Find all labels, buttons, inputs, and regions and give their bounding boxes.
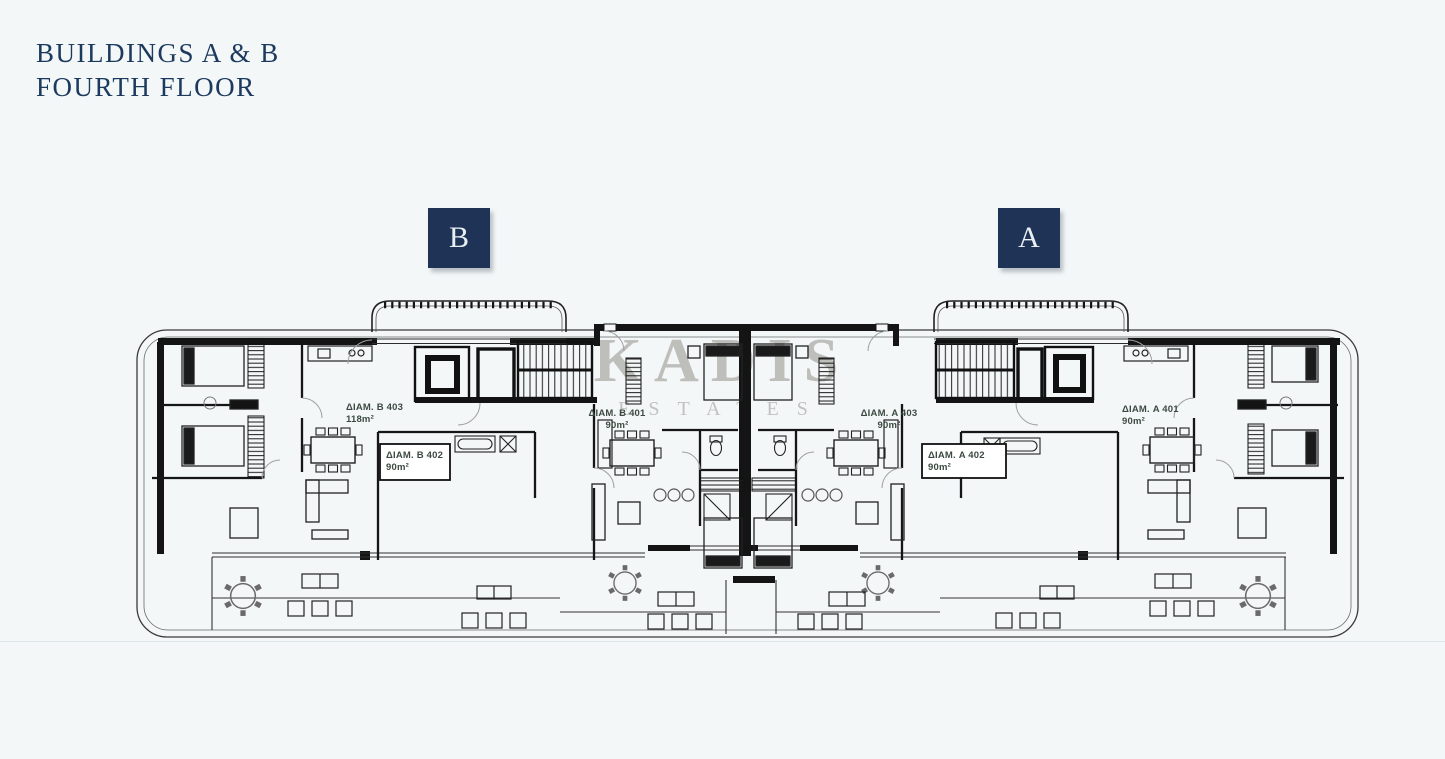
apartment-a401-area: 90m² [1122, 416, 1179, 428]
apartment-label-b401: ΔΙΑΜ. B 401 90m² [572, 408, 662, 431]
apartment-b402-name: ΔΙΑΜ. B 402 [386, 450, 443, 461]
apartment-b401-name: ΔΙΑΜ. B 401 [588, 408, 645, 419]
dining-table-a401 [1143, 428, 1201, 472]
apartment-a401-name: ΔΙΑΜ. A 401 [1122, 404, 1179, 415]
apartment-a402-name: ΔΙΑΜ. A 402 [928, 450, 985, 461]
page: { "header": { "title_line1": "BUILDINGS … [0, 0, 1445, 759]
apartment-b403-name: ΔΙΑΜ. B 403 [346, 402, 403, 413]
shaft-b [478, 349, 514, 399]
canopy-bump-out-left [372, 301, 566, 332]
apartment-a403-area: 90m² [844, 420, 934, 432]
canopy-bump-out-right [934, 301, 1128, 332]
terrace-table-1 [225, 576, 260, 616]
dining-table-b403 [304, 428, 362, 472]
apartment-label-a402: ΔΙΑΜ. A 402 90m² [928, 450, 985, 473]
floor-plan [0, 0, 1445, 759]
exterior-walls [157, 324, 1340, 583]
terrace-table-3 [862, 565, 893, 601]
apartment-label-a403: ΔΙΑΜ. A 403 90m² [844, 408, 934, 431]
apartment-a402-area: 90m² [928, 462, 985, 474]
apartment-label-b403: ΔΙΑΜ. B 403 118m² [346, 402, 403, 425]
apartment-b401-area: 90m² [572, 420, 662, 432]
staircase-a [936, 342, 1014, 398]
apartment-a403-name: ΔΙΑΜ. A 403 [861, 408, 918, 419]
dining-table-a403 [827, 431, 885, 475]
terrace-table-4 [1240, 576, 1275, 616]
apartment-label-b402: ΔΙΑΜ. B 402 90m² [386, 450, 443, 473]
shaft-a [1018, 349, 1042, 399]
plan-bottom-rule [0, 641, 1445, 642]
apartment-label-a401: ΔΙΑΜ. A 401 90m² [1122, 404, 1179, 427]
elevator-b [415, 347, 469, 401]
staircase-b [518, 342, 592, 398]
apartment-b402-area: 90m² [386, 462, 443, 474]
elevator-a [1045, 347, 1093, 399]
balcony-lines [212, 557, 1285, 634]
apartment-b403-area: 118m² [346, 414, 403, 426]
terrace-table-2 [609, 565, 640, 601]
